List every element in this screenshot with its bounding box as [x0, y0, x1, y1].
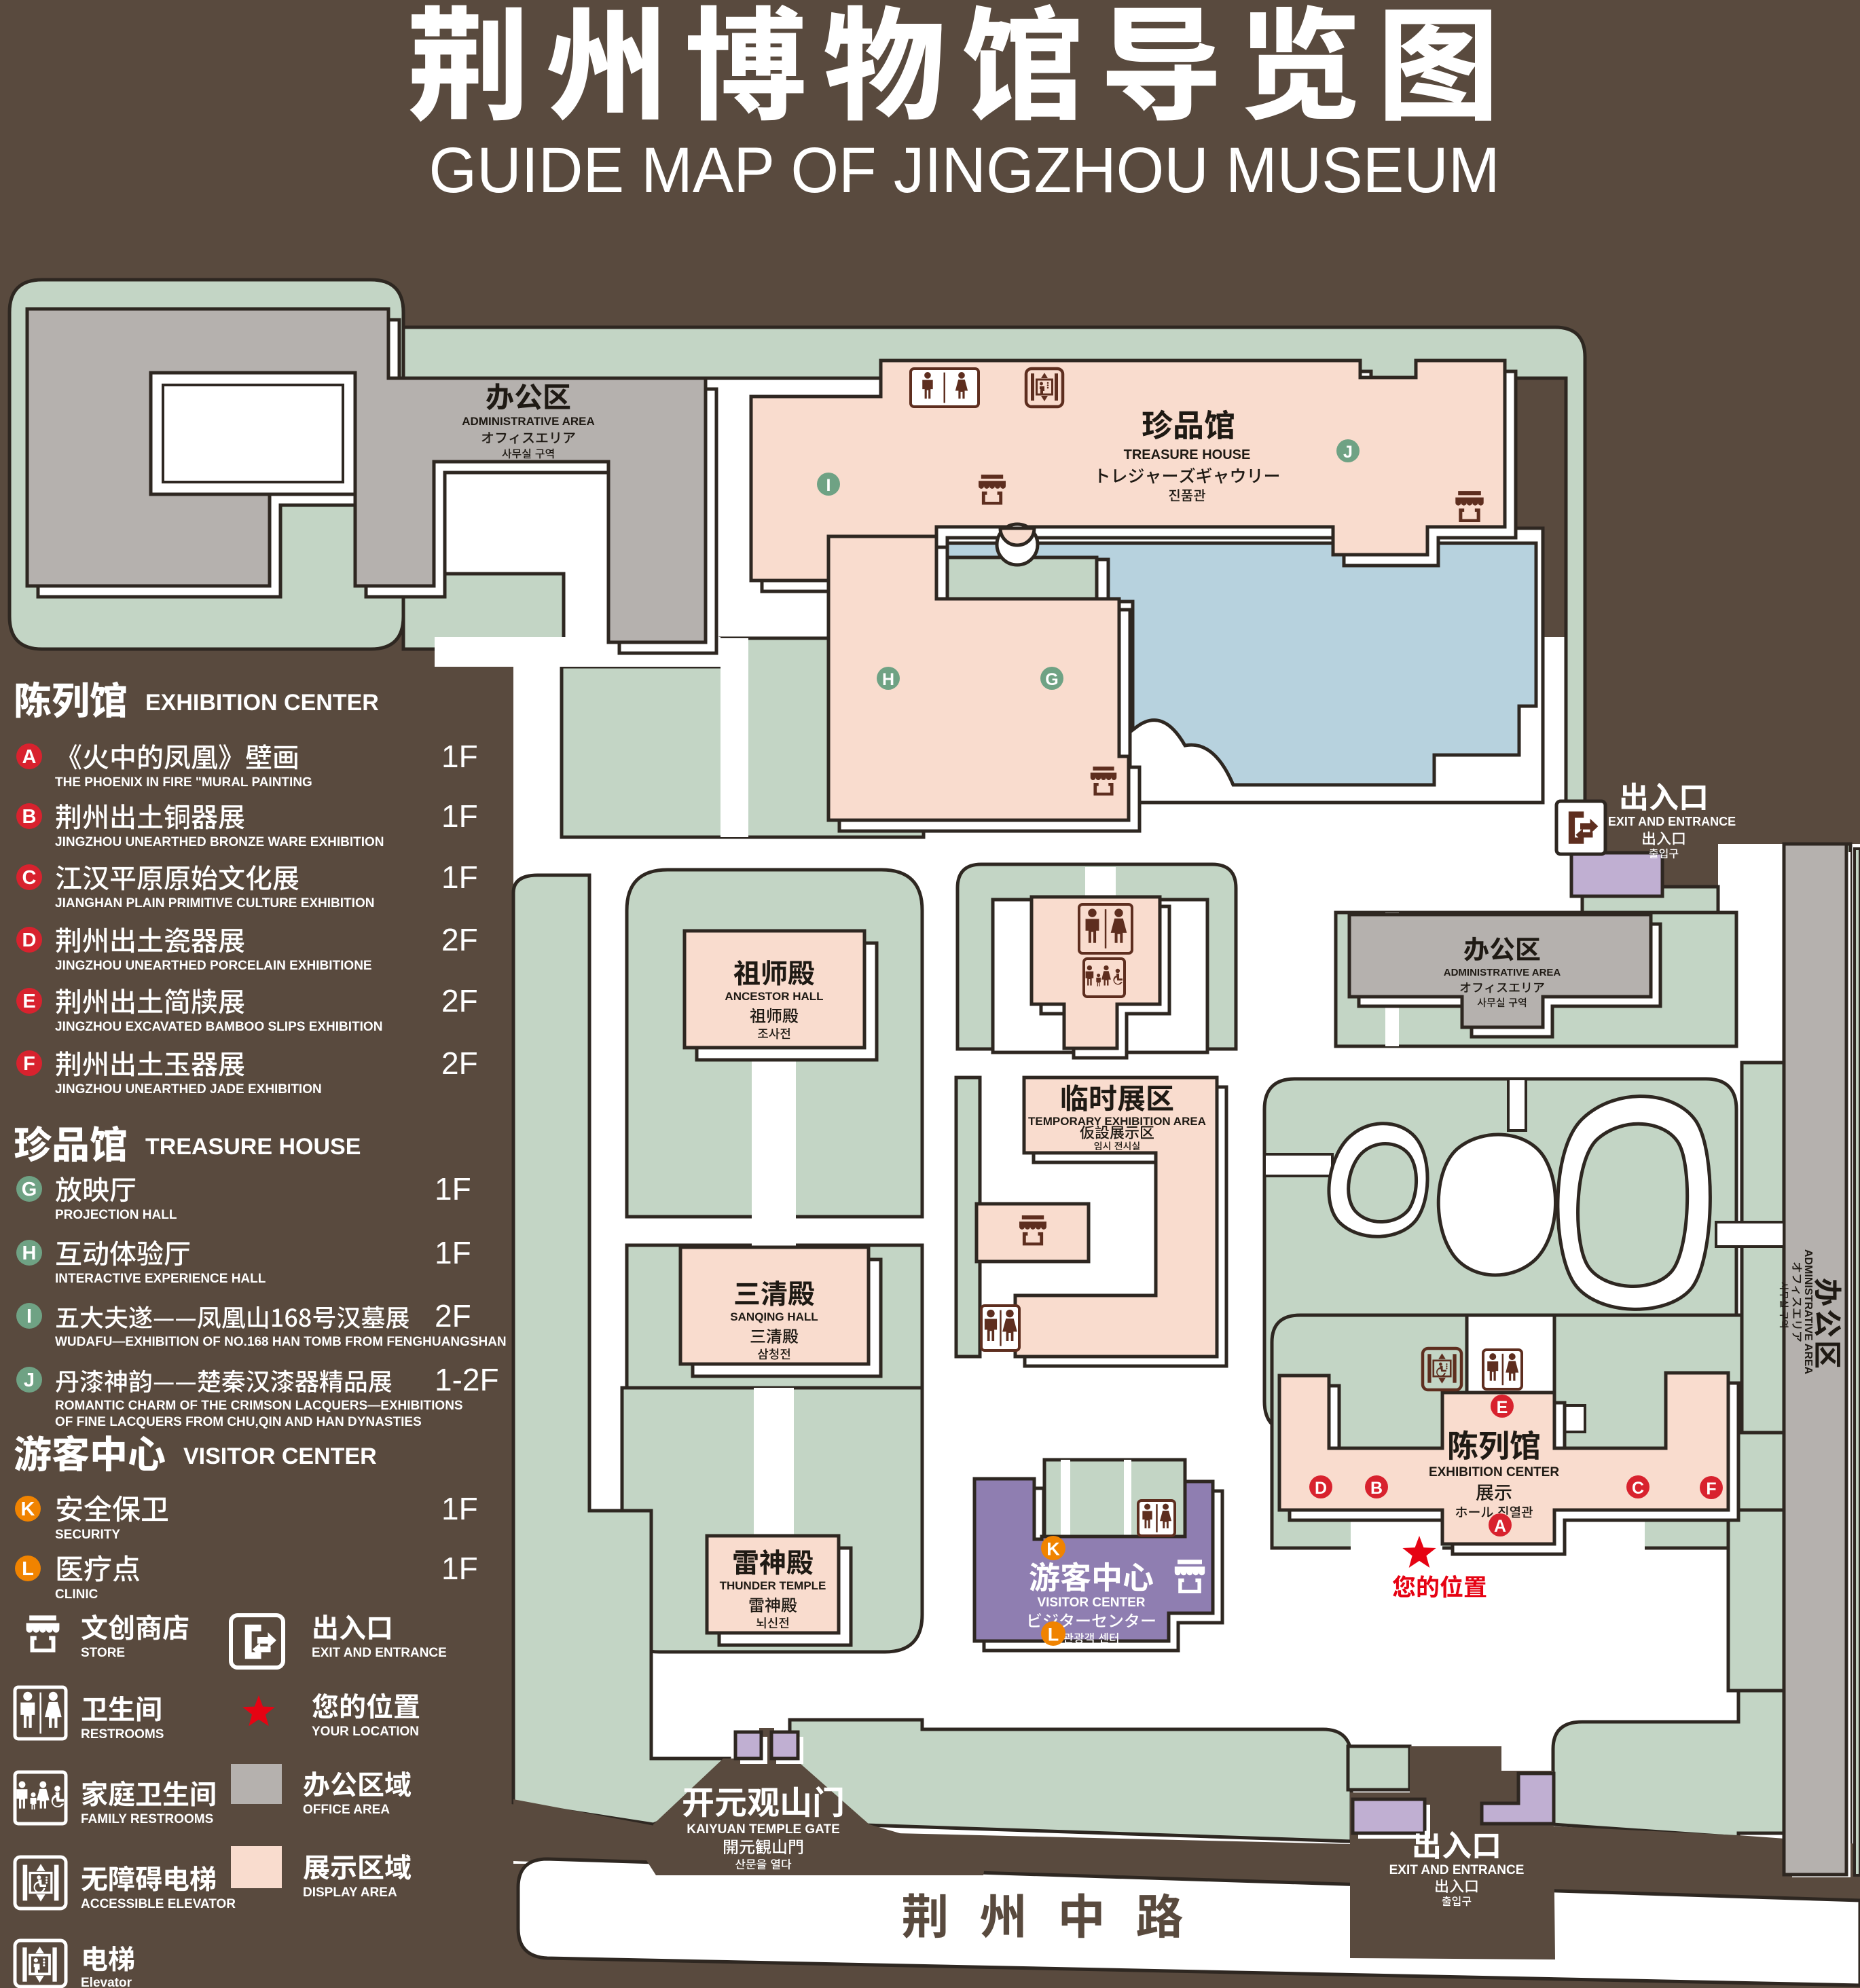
svg-text:FAMILY RESTROOMS: FAMILY RESTROOMS	[81, 1812, 213, 1826]
svg-text:F: F	[23, 1053, 35, 1075]
svg-text:F: F	[1706, 1479, 1716, 1498]
svg-text:RESTROOMS: RESTROOMS	[81, 1727, 164, 1742]
svg-text:1-2F: 1-2F	[435, 1362, 499, 1397]
svg-text:VISITOR CENTER: VISITOR CENTER	[1037, 1596, 1145, 1610]
svg-text:D: D	[1315, 1479, 1327, 1498]
svg-text:EXHIBITION CENTER: EXHIBITION CENTER	[145, 690, 379, 716]
svg-text:JIANGHAN PLAIN PRIMITIVE CULTU: JIANGHAN PLAIN PRIMITIVE CULTURE EXHIBIT…	[55, 896, 374, 910]
svg-text:ROMANTIC CHARM OF THE CRIMSON: ROMANTIC CHARM OF THE CRIMSON LACQUERS—E…	[55, 1399, 463, 1413]
svg-text:I: I	[826, 476, 831, 495]
svg-text:PROJECTION HALL: PROJECTION HALL	[55, 1208, 177, 1222]
svg-text:1F: 1F	[435, 1171, 471, 1207]
svg-text:SANQING HALL: SANQING HALL	[730, 1310, 818, 1323]
svg-text:THUNDER TEMPLE: THUNDER TEMPLE	[720, 1579, 826, 1592]
svg-text:E: E	[1497, 1398, 1508, 1417]
svg-text:2F: 2F	[441, 1046, 478, 1081]
svg-text:EXIT AND ENTRANCE: EXIT AND ENTRANCE	[312, 1646, 447, 1660]
svg-text:G: G	[1045, 670, 1058, 689]
svg-text:ADMINISTRATIVE AREA: ADMINISTRATIVE AREA	[1802, 1249, 1814, 1374]
svg-text:ADMINISTRATIVE AREA: ADMINISTRATIVE AREA	[1444, 967, 1561, 978]
svg-text:DISPLAY AREA: DISPLAY AREA	[303, 1885, 397, 1900]
svg-text:ADMINISTRATIVE AREA: ADMINISTRATIVE AREA	[462, 415, 595, 428]
svg-text:JINGZHOU UNEARTHED JADE EXHIBI: JINGZHOU UNEARTHED JADE EXHIBITION	[55, 1082, 322, 1097]
svg-text:J: J	[24, 1369, 35, 1391]
svg-text:1F: 1F	[441, 860, 478, 895]
svg-text:TEMPORARY EXHIBITION AREA: TEMPORARY EXHIBITION AREA	[1028, 1115, 1206, 1128]
svg-text:TREASURE HOUSE: TREASURE HOUSE	[145, 1134, 361, 1160]
svg-text:SECURITY: SECURITY	[55, 1528, 120, 1542]
svg-text:2F: 2F	[441, 983, 478, 1018]
svg-text:OFFICE AREA: OFFICE AREA	[303, 1803, 390, 1817]
svg-text:ANCESTOR HALL: ANCESTOR HALL	[725, 990, 823, 1003]
svg-text:D: D	[22, 929, 37, 951]
svg-text:YOUR LOCATION: YOUR LOCATION	[312, 1725, 419, 1739]
svg-text:CLINIC: CLINIC	[55, 1587, 98, 1602]
svg-text:WUDAFU—EXHIBITION OF NO.168 HA: WUDAFU—EXHIBITION OF NO.168 HAN TOMB FRO…	[55, 1335, 507, 1349]
svg-text:E: E	[22, 991, 35, 1012]
svg-text:2F: 2F	[435, 1298, 471, 1333]
svg-text:JINGZHOU UNEARTHED PORCELAIN E: JINGZHOU UNEARTHED PORCELAIN EXHIBITIONE	[55, 959, 372, 973]
svg-text:JINGZHOU EXCAVATED BAMBOO SLIP: JINGZHOU EXCAVATED BAMBOO SLIPS EXHIBITI…	[55, 1020, 382, 1034]
svg-text:JINGZHOU UNEARTHED BRONZE WARE: JINGZHOU UNEARTHED BRONZE WARE EXHIBITIO…	[55, 835, 384, 849]
svg-text:VISITOR CENTER: VISITOR CENTER	[183, 1443, 377, 1469]
svg-text:KAIYUAN TEMPLE GATE: KAIYUAN TEMPLE GATE	[687, 1822, 840, 1837]
svg-text:EXHIBITION CENTER: EXHIBITION CENTER	[1429, 1465, 1559, 1479]
svg-text:ACCESSIBLE ELEVATOR: ACCESSIBLE ELEVATOR	[81, 1897, 236, 1911]
svg-text:H: H	[882, 670, 894, 689]
svg-text:I: I	[26, 1306, 32, 1327]
svg-text:B: B	[22, 806, 37, 828]
svg-text:TREASURE HOUSE: TREASURE HOUSE	[1124, 447, 1251, 462]
svg-text:A: A	[22, 746, 37, 768]
svg-text:K: K	[21, 1498, 35, 1520]
svg-text:INTERACTIVE EXPERIENCE HALL: INTERACTIVE EXPERIENCE HALL	[55, 1272, 266, 1286]
svg-text:J: J	[1343, 443, 1353, 462]
svg-text:OF FINE LACQUERS FROM CHU,QIN: OF FINE LACQUERS FROM CHU,QIN AND HAN DY…	[55, 1415, 422, 1429]
svg-text:B: B	[1370, 1479, 1383, 1498]
svg-text:EXIT AND ENTRANCE: EXIT AND ENTRANCE	[1608, 815, 1736, 828]
svg-text:1F: 1F	[435, 1235, 471, 1270]
svg-text:L: L	[1048, 1624, 1059, 1644]
svg-text:1F: 1F	[441, 1551, 478, 1586]
svg-text:H: H	[22, 1242, 37, 1264]
svg-text:G: G	[22, 1179, 37, 1200]
svg-text:EXIT AND ENTRANCE: EXIT AND ENTRANCE	[1389, 1863, 1525, 1877]
svg-text:1F: 1F	[441, 739, 478, 774]
svg-text:1F: 1F	[441, 798, 478, 834]
svg-text:K: K	[1046, 1539, 1060, 1559]
svg-text:2F: 2F	[441, 922, 478, 957]
svg-text:Elevator: Elevator	[81, 1976, 132, 1988]
svg-text:L: L	[22, 1558, 34, 1580]
svg-text:GUIDE MAP OF JINGZHOU MUSEUM: GUIDE MAP OF JINGZHOU MUSEUM	[429, 134, 1500, 206]
svg-text:C: C	[1632, 1479, 1644, 1498]
svg-text:C: C	[22, 867, 37, 889]
svg-text:STORE: STORE	[81, 1646, 125, 1660]
svg-text:THE PHOENIX IN FIRE "MURAL PAI: THE PHOENIX IN FIRE "MURAL PAINTING	[55, 775, 312, 790]
svg-text:1F: 1F	[441, 1491, 478, 1526]
svg-text:A: A	[1494, 1517, 1506, 1536]
